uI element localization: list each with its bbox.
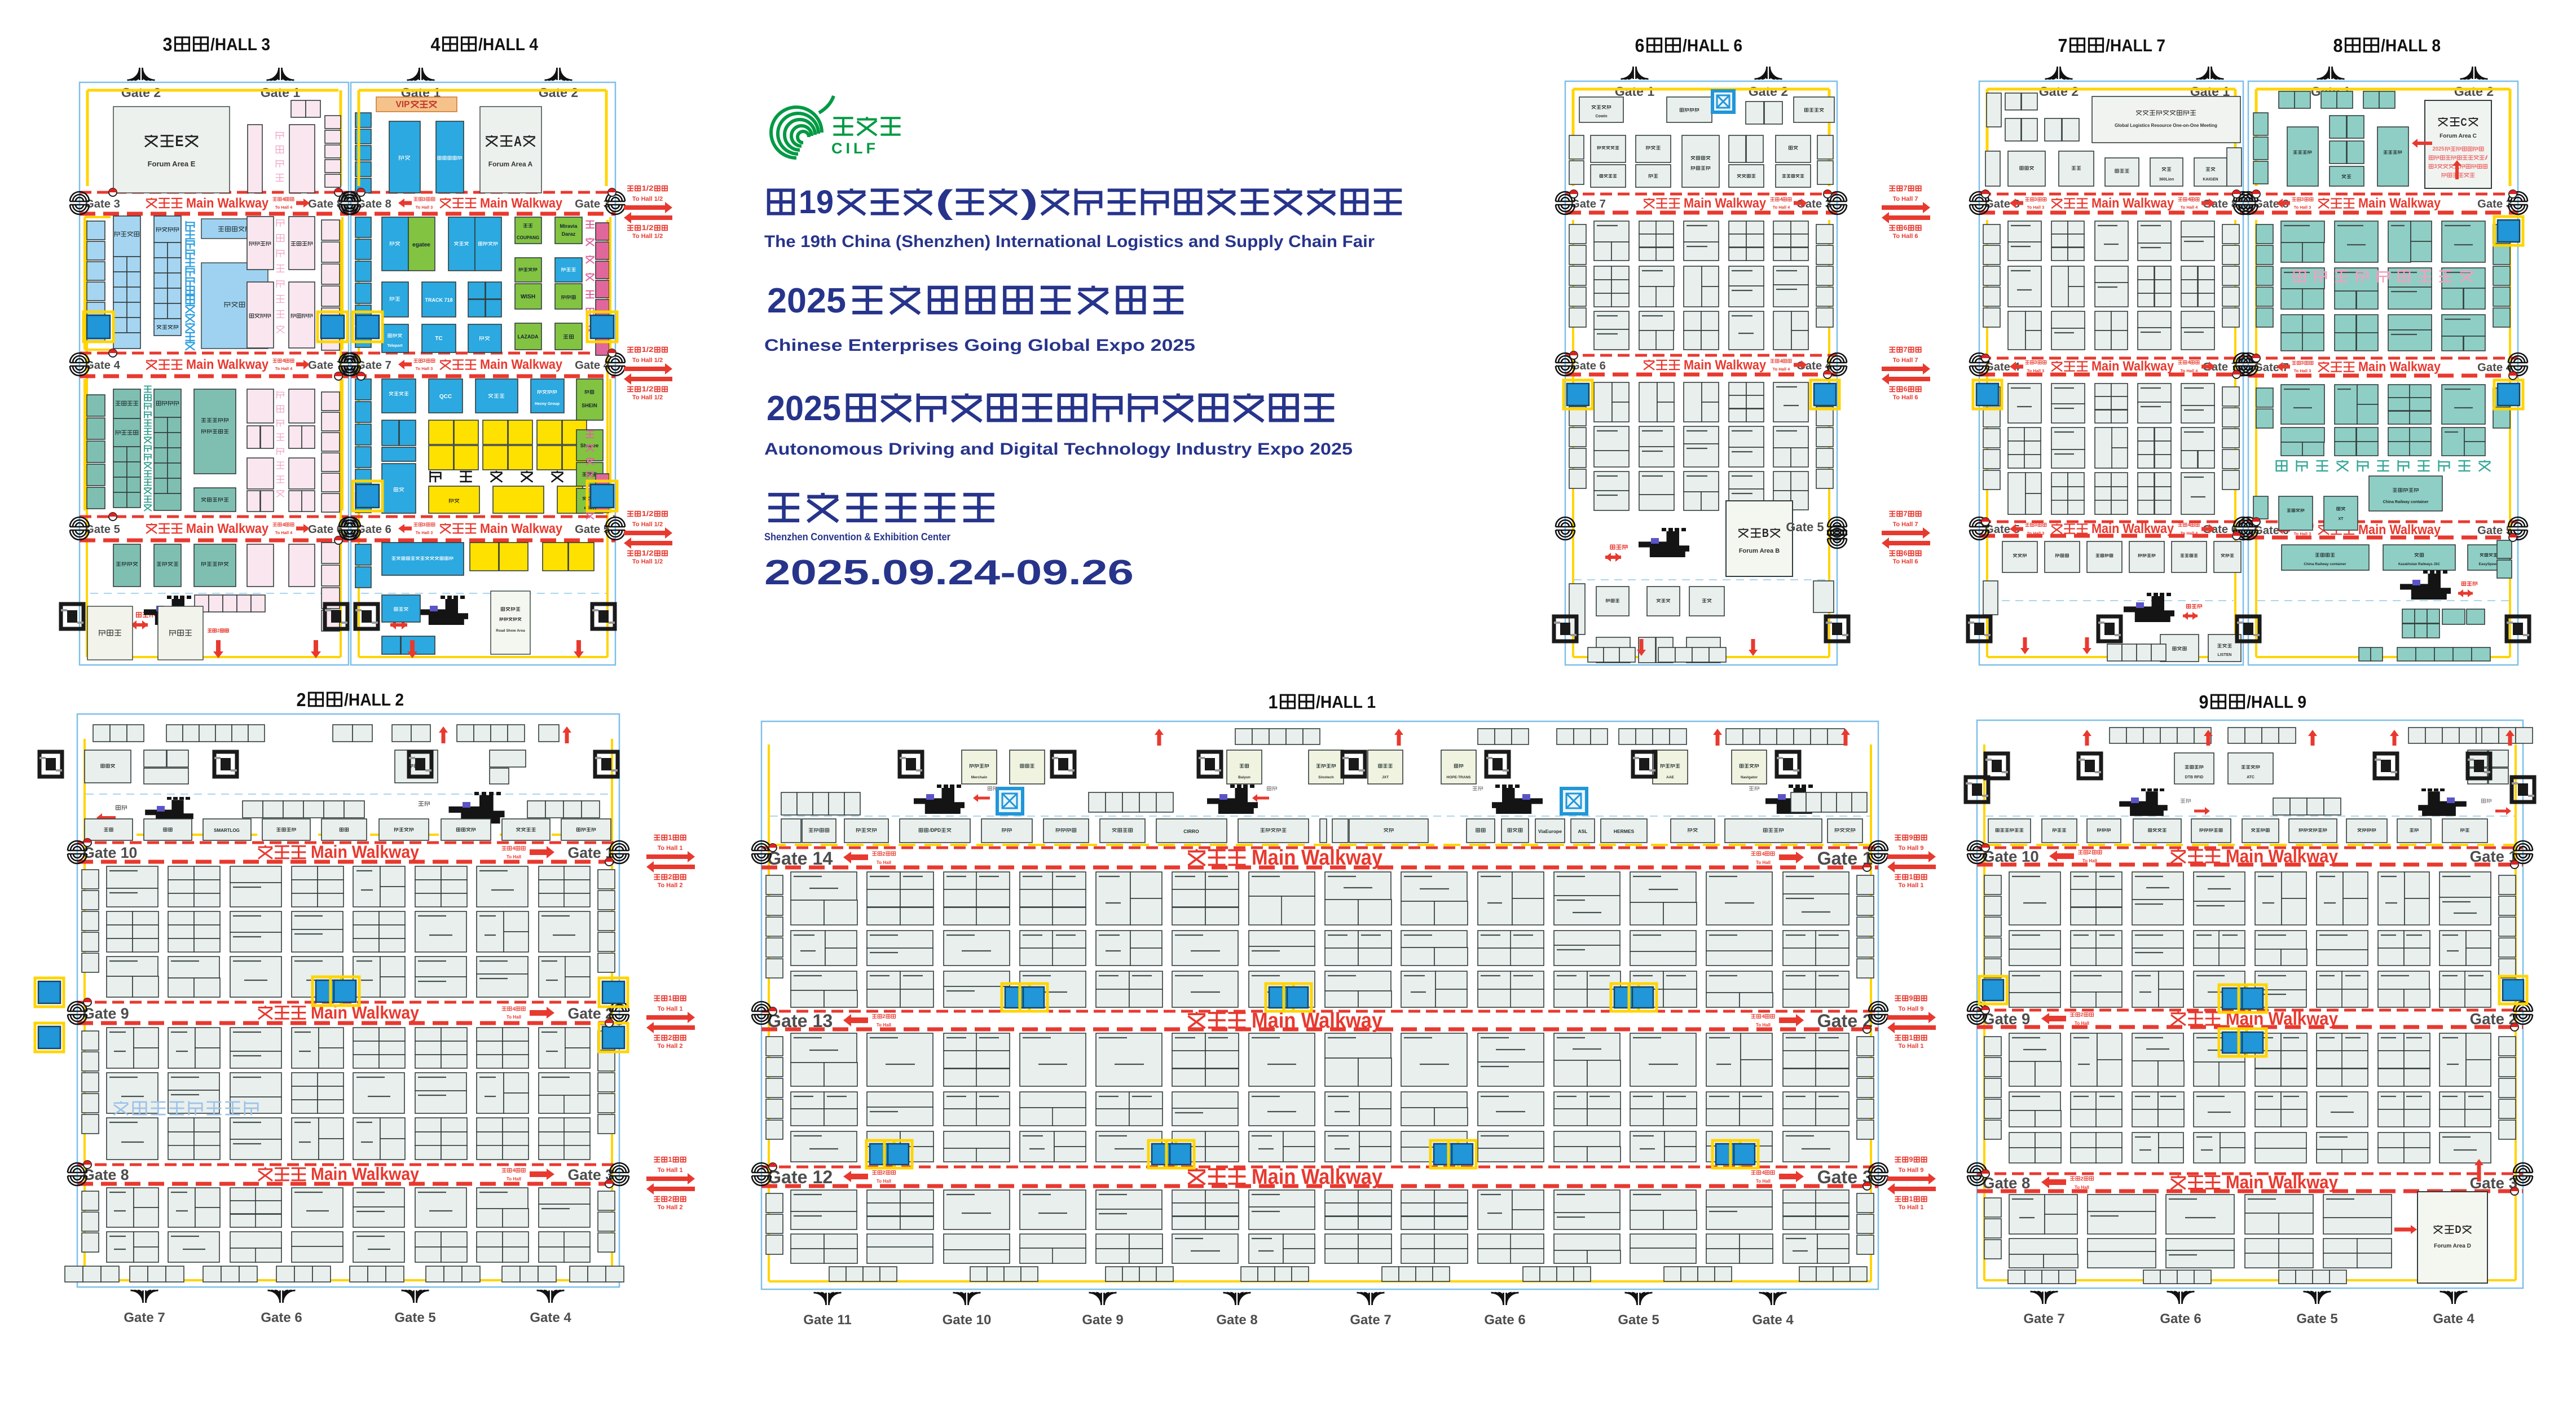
svg-text:7: 7 xyxy=(1904,184,1908,192)
svg-text:Gate 7: Gate 7 xyxy=(1571,198,1606,210)
svg-text:1: 1 xyxy=(668,834,672,841)
svg-text:A: A xyxy=(514,134,522,149)
svg-text:Main Walkway: Main Walkway xyxy=(480,196,563,211)
svg-text:To Hall 9: To Hall 9 xyxy=(1898,1006,1923,1012)
svg-text:To Hall 2: To Hall 2 xyxy=(657,1204,682,1211)
svg-text:Forum Area A: Forum Area A xyxy=(488,160,533,168)
svg-text:To Hall 1/2: To Hall 1/2 xyxy=(632,521,663,528)
svg-text:To Hall 3: To Hall 3 xyxy=(416,530,433,535)
svg-text:9: 9 xyxy=(2199,692,2209,713)
svg-text:Gate 8: Gate 8 xyxy=(1983,1174,2030,1192)
svg-text:China Railway container: China Railway container xyxy=(2383,500,2429,504)
svg-text:Gate 8: Gate 8 xyxy=(308,198,343,210)
svg-text:Merchain: Merchain xyxy=(971,775,988,779)
svg-text:/: / xyxy=(2485,155,2488,161)
svg-text:4: 4 xyxy=(513,845,516,851)
svg-text:To Hall 3: To Hall 3 xyxy=(2027,368,2045,373)
svg-text:To Hall 3: To Hall 3 xyxy=(2294,205,2311,210)
svg-text:Gate 4: Gate 4 xyxy=(2433,1311,2474,1327)
svg-text:Gate 9: Gate 9 xyxy=(1082,1312,1123,1328)
svg-text:Gate 4: Gate 4 xyxy=(530,1310,571,1325)
svg-text:2: 2 xyxy=(297,690,306,711)
svg-text:Gate 4: Gate 4 xyxy=(575,359,610,372)
svg-text:Gate 5: Gate 5 xyxy=(85,523,120,536)
svg-text:Forum Area C: Forum Area C xyxy=(2440,133,2477,139)
svg-text:Main Walkway: Main Walkway xyxy=(2226,846,2338,866)
svg-text:Forum Area D: Forum Area D xyxy=(2434,1243,2471,1249)
svg-text:Gate 5: Gate 5 xyxy=(2477,525,2512,537)
svg-text:ViaEurope: ViaEurope xyxy=(1538,829,1562,834)
svg-text:To Hall: To Hall xyxy=(507,1015,521,1020)
svg-text:1: 1 xyxy=(1269,692,1278,713)
svg-text:Cowin: Cowin xyxy=(1596,114,1608,118)
svg-text:Main Walkway: Main Walkway xyxy=(2358,359,2441,374)
svg-text:To Hall 6: To Hall 6 xyxy=(1892,394,1918,401)
svg-text:6: 6 xyxy=(1635,36,1645,56)
svg-text:Gate 5: Gate 5 xyxy=(1618,1312,1659,1328)
svg-text:TRACK 718: TRACK 718 xyxy=(425,297,452,303)
svg-text:Gate 7: Gate 7 xyxy=(308,359,343,372)
svg-text:6: 6 xyxy=(1904,224,1908,232)
svg-text:/HALL 8: /HALL 8 xyxy=(2381,36,2441,55)
svg-text:To Hall: To Hall xyxy=(877,860,891,865)
svg-text:4: 4 xyxy=(1762,1170,1765,1175)
svg-text:Main Walkway: Main Walkway xyxy=(1252,1165,1382,1189)
svg-text:Main Walkway: Main Walkway xyxy=(186,521,269,536)
svg-text:Gate 9: Gate 9 xyxy=(83,1005,129,1022)
svg-text:HERMES: HERMES xyxy=(1614,829,1635,834)
svg-text:To Hall: To Hall xyxy=(1756,1023,1771,1028)
svg-text:Gate 8: Gate 8 xyxy=(83,1166,129,1183)
svg-text:2025: 2025 xyxy=(767,281,846,320)
svg-text:3: 3 xyxy=(2301,360,2304,365)
svg-text:Sinotech: Sinotech xyxy=(1318,775,1333,779)
svg-text:Gate 2: Gate 2 xyxy=(121,85,161,100)
svg-text:Gate 3: Gate 3 xyxy=(575,198,610,210)
svg-text:JXT: JXT xyxy=(1382,775,1389,779)
svg-text:To Hall: To Hall xyxy=(2082,858,2097,863)
svg-text:To Hall 7: To Hall 7 xyxy=(1892,521,1918,528)
svg-text:Main Walkway: Main Walkway xyxy=(480,521,563,536)
svg-text:To Hall 1: To Hall 1 xyxy=(1898,1043,1923,1050)
svg-text:C: C xyxy=(2461,116,2467,129)
svg-text:WISH: WISH xyxy=(521,294,535,300)
svg-text:4: 4 xyxy=(2188,196,2191,202)
svg-text:4: 4 xyxy=(1780,358,1783,364)
svg-text:Gate 14: Gate 14 xyxy=(767,848,833,869)
svg-text:To Hall 3: To Hall 3 xyxy=(2294,368,2311,373)
svg-text:To Hall 3: To Hall 3 xyxy=(416,366,433,371)
svg-text:D: D xyxy=(2455,1223,2461,1235)
svg-text:Gate 3: Gate 3 xyxy=(2477,198,2512,210)
svg-text:To Hall 1: To Hall 1 xyxy=(657,845,682,852)
svg-text:2: 2 xyxy=(217,628,219,633)
svg-text:4: 4 xyxy=(1762,851,1765,857)
svg-text:VIP: VIP xyxy=(396,100,410,109)
svg-text:4: 4 xyxy=(2188,522,2191,527)
svg-text:Gate 6: Gate 6 xyxy=(2160,1311,2201,1327)
svg-text:To Hall 3: To Hall 3 xyxy=(2027,531,2045,536)
svg-text:Miravia: Miravia xyxy=(560,223,578,229)
svg-text:ASL: ASL xyxy=(1578,829,1588,834)
svg-text:Gate 4: Gate 4 xyxy=(85,359,121,372)
svg-text:Gate 8: Gate 8 xyxy=(1216,1312,1257,1328)
svg-text:2: 2 xyxy=(668,873,672,881)
svg-text:To Hall 4: To Hall 4 xyxy=(275,530,293,535)
svg-text:Gate 2: Gate 2 xyxy=(2039,84,2079,99)
svg-text:Gate 6: Gate 6 xyxy=(356,523,391,536)
svg-text:2: 2 xyxy=(883,1170,886,1175)
svg-text:/HALL 3: /HALL 3 xyxy=(210,34,270,54)
svg-text:/HALL 6: /HALL 6 xyxy=(1683,36,1742,55)
svg-text:ATC: ATC xyxy=(2247,775,2254,779)
svg-text:2: 2 xyxy=(2081,1176,2084,1182)
svg-text:Gate 6: Gate 6 xyxy=(1484,1312,1525,1328)
svg-text:Daraz: Daraz xyxy=(562,231,576,237)
svg-text:EasySpeed: EasySpeed xyxy=(2479,562,2499,566)
svg-text:To Hall 9: To Hall 9 xyxy=(1898,845,1923,852)
svg-text:To Hall 1/2: To Hall 1/2 xyxy=(632,558,663,565)
svg-text:9: 9 xyxy=(1909,994,1913,1002)
svg-text:Main Walkway: Main Walkway xyxy=(480,357,563,372)
svg-text:Kazakhstan Railways JSC: Kazakhstan Railways JSC xyxy=(2398,563,2441,566)
svg-text:8: 8 xyxy=(2333,36,2343,56)
svg-text:Main Walkway: Main Walkway xyxy=(2091,196,2174,211)
svg-text:Chinese Enterprises Going Glob: Chinese Enterprises Going Global Expo 20… xyxy=(764,336,1195,355)
svg-text:Main Walkway: Main Walkway xyxy=(186,196,269,211)
svg-text:1: 1 xyxy=(668,994,672,1002)
svg-text:2: 2 xyxy=(2089,849,2091,855)
svg-text:9: 9 xyxy=(1909,834,1913,841)
svg-text:(: ( xyxy=(936,184,954,221)
svg-text:To Hall 6: To Hall 6 xyxy=(1892,558,1918,565)
svg-text:Main Walkway: Main Walkway xyxy=(2358,522,2441,537)
svg-text:To Hall 4: To Hall 4 xyxy=(275,205,293,210)
svg-text:To Hall: To Hall xyxy=(2075,1021,2089,1026)
svg-text:XT: XT xyxy=(2339,517,2344,521)
svg-text:3: 3 xyxy=(2035,522,2037,527)
svg-text:4: 4 xyxy=(513,1167,516,1173)
svg-text:To Hall: To Hall xyxy=(877,1023,891,1028)
svg-text:Gate 4: Gate 4 xyxy=(2477,362,2513,374)
svg-text:The 19th China (Shenzhen) Inte: The 19th China (Shenzhen) International … xyxy=(764,232,1375,251)
svg-text:Global Logistics Resource One-: Global Logistics Resource One-on-One Mee… xyxy=(2115,123,2217,128)
svg-text:Gate 2: Gate 2 xyxy=(2454,84,2494,99)
svg-text:4: 4 xyxy=(513,1006,516,1012)
svg-text:4: 4 xyxy=(283,196,285,202)
svg-text:4: 4 xyxy=(1762,1013,1765,1019)
svg-text:Gate 12: Gate 12 xyxy=(767,1167,833,1187)
svg-text:Main Walkway: Main Walkway xyxy=(2358,196,2441,211)
svg-text:Gate 5: Gate 5 xyxy=(1786,520,1824,534)
svg-text:1/2: 1/2 xyxy=(642,510,654,518)
svg-text:1: 1 xyxy=(1909,1034,1913,1042)
svg-text:To Hall 4: To Hall 4 xyxy=(2181,531,2199,536)
svg-text:Main Walkway: Main Walkway xyxy=(1684,358,1767,373)
svg-text:/DPD: /DPD xyxy=(930,827,941,833)
svg-text:Main Walkway: Main Walkway xyxy=(2091,521,2174,536)
svg-text:4: 4 xyxy=(2188,359,2191,365)
svg-text:To Hall 1: To Hall 1 xyxy=(1898,882,1923,889)
svg-text:7: 7 xyxy=(2058,36,2068,56)
svg-text:4: 4 xyxy=(431,34,441,55)
svg-text:CILF: CILF xyxy=(831,140,879,157)
svg-text:To Hall 1/2: To Hall 1/2 xyxy=(632,357,663,364)
svg-text:3: 3 xyxy=(423,358,426,363)
svg-text:To Hall 1: To Hall 1 xyxy=(657,1006,682,1012)
svg-text:To Hall 4: To Hall 4 xyxy=(2181,368,2199,373)
svg-text:To Hall: To Hall xyxy=(1756,1179,1771,1184)
svg-text:Gate 5: Gate 5 xyxy=(394,1310,435,1325)
svg-text:CIRRO: CIRRO xyxy=(1183,829,1199,834)
svg-text:SHEIN: SHEIN xyxy=(582,403,597,408)
svg-text:4: 4 xyxy=(283,522,285,527)
svg-text:/HALL 9: /HALL 9 xyxy=(2247,692,2306,712)
svg-text:4: 4 xyxy=(1780,196,1783,202)
svg-text:2: 2 xyxy=(883,1013,886,1019)
svg-text:Baiyun: Baiyun xyxy=(1238,775,1250,779)
svg-text:Gate 1: Gate 1 xyxy=(261,85,301,100)
svg-text:1/2: 1/2 xyxy=(642,184,654,192)
svg-text:To Hall 1/2: To Hall 1/2 xyxy=(632,233,663,240)
svg-text:China Railway container: China Railway container xyxy=(2304,562,2346,566)
svg-text:To Hall: To Hall xyxy=(2075,1185,2089,1190)
svg-text:Gate 3: Gate 3 xyxy=(2470,1174,2517,1192)
svg-text:3: 3 xyxy=(2434,164,2437,170)
svg-text:3: 3 xyxy=(423,522,426,527)
svg-text:Shopee: Shopee xyxy=(580,443,599,448)
svg-text:3: 3 xyxy=(423,196,426,202)
svg-text:Forum Area B: Forum Area B xyxy=(1739,548,1780,554)
svg-text:7: 7 xyxy=(1904,510,1908,518)
svg-text:Gate 2: Gate 2 xyxy=(1749,84,1788,99)
svg-text:To Hall: To Hall xyxy=(877,1179,891,1184)
svg-text:To Hall 1/2: To Hall 1/2 xyxy=(632,196,663,202)
svg-text:2: 2 xyxy=(2081,1012,2084,1017)
svg-text:To Hall 4: To Hall 4 xyxy=(2181,205,2199,210)
svg-text:2025.09.24-09.26: 2025.09.24-09.26 xyxy=(764,553,1134,592)
svg-text:9: 9 xyxy=(1909,1156,1913,1164)
svg-text:Gate 2: Gate 2 xyxy=(539,85,578,100)
svg-text:AAE: AAE xyxy=(1666,775,1674,779)
svg-text:To Hall 1: To Hall 1 xyxy=(657,1167,682,1174)
svg-text:Gate 4: Gate 4 xyxy=(1752,1312,1794,1328)
svg-text:To Hall 3: To Hall 3 xyxy=(2027,205,2045,210)
svg-text:1: 1 xyxy=(668,1156,672,1164)
svg-text:Gate 5: Gate 5 xyxy=(2296,1311,2337,1327)
svg-text:Main Walkway: Main Walkway xyxy=(2091,359,2174,374)
svg-text:Gate 3: Gate 3 xyxy=(85,198,120,210)
svg-text:E: E xyxy=(175,133,184,149)
svg-text:Gate 13: Gate 13 xyxy=(767,1011,833,1031)
svg-text:LISTEN: LISTEN xyxy=(2218,653,2232,657)
svg-text:Gate 7: Gate 7 xyxy=(356,359,391,372)
svg-text:Gate 7: Gate 7 xyxy=(124,1310,165,1325)
svg-text:Hecny Group: Hecny Group xyxy=(535,402,560,406)
svg-text:To Hall 7: To Hall 7 xyxy=(1892,196,1918,202)
svg-text:Main Walkway: Main Walkway xyxy=(1684,196,1767,211)
svg-text:Gate 11: Gate 11 xyxy=(803,1312,851,1328)
svg-text:QCC: QCC xyxy=(439,394,452,400)
svg-text:/HALL 7: /HALL 7 xyxy=(2106,36,2165,55)
svg-text:6: 6 xyxy=(1904,385,1908,393)
svg-text:To Hall 6: To Hall 6 xyxy=(1892,233,1918,240)
svg-text:3: 3 xyxy=(2035,359,2037,365)
svg-text:Gate 6: Gate 6 xyxy=(1571,360,1606,372)
svg-text:1/2: 1/2 xyxy=(642,224,654,232)
svg-text:Main Walkway: Main Walkway xyxy=(2226,1172,2338,1192)
svg-text:19: 19 xyxy=(799,184,834,221)
svg-text:LAZADA: LAZADA xyxy=(518,334,539,340)
svg-text:egatee: egatee xyxy=(412,242,430,248)
svg-text:To Hall 4: To Hall 4 xyxy=(1773,205,1791,210)
svg-text:To Hall 4: To Hall 4 xyxy=(1773,367,1791,372)
svg-text:1: 1 xyxy=(1909,873,1913,881)
svg-text:KAIGEN: KAIGEN xyxy=(2203,178,2218,182)
svg-text:Gate 6: Gate 6 xyxy=(308,523,343,536)
svg-text:To Hall 2: To Hall 2 xyxy=(657,882,682,889)
svg-text:Road Show Area: Road Show Area xyxy=(496,629,525,633)
svg-text:DTB RFID: DTB RFID xyxy=(2185,775,2204,779)
svg-text:Gate 5: Gate 5 xyxy=(575,523,610,536)
svg-text:TC: TC xyxy=(435,336,442,342)
svg-text:Gate 10: Gate 10 xyxy=(1983,848,2039,865)
svg-text:To Hall: To Hall xyxy=(507,854,521,860)
svg-text:Gate 2: Gate 2 xyxy=(2470,1010,2517,1028)
svg-text:To Hall: To Hall xyxy=(507,1176,521,1182)
svg-text:Main Walkway: Main Walkway xyxy=(311,842,420,862)
svg-text:To Hall 9: To Hall 9 xyxy=(1898,1167,1923,1174)
svg-text:To Hall 1: To Hall 1 xyxy=(1898,1204,1923,1211)
svg-text:To Hall 2: To Hall 2 xyxy=(657,1043,682,1050)
svg-text:Main Walkway: Main Walkway xyxy=(1252,846,1382,870)
svg-text:B: B xyxy=(1762,527,1769,540)
svg-text:Gate 6: Gate 6 xyxy=(261,1310,302,1325)
svg-text:2025: 2025 xyxy=(767,389,841,428)
svg-text:/HALL 2: /HALL 2 xyxy=(344,690,404,710)
svg-text:Autonomous Driving and Digital: Autonomous Driving and Digital Technolog… xyxy=(764,440,1353,459)
svg-text:To Hall 7: To Hall 7 xyxy=(1892,357,1918,364)
svg-text:2: 2 xyxy=(883,851,886,857)
svg-text:HOPE-TRANS: HOPE-TRANS xyxy=(1447,775,1472,779)
svg-text:1: 1 xyxy=(1909,1195,1913,1203)
svg-text:/HALL 4: /HALL 4 xyxy=(478,34,539,54)
svg-text:360Lion: 360Lion xyxy=(2159,178,2174,182)
svg-text:1/2: 1/2 xyxy=(642,346,654,354)
svg-text:): ) xyxy=(1021,184,1038,221)
svg-text:4: 4 xyxy=(283,358,285,363)
svg-text:To Hall 1/2: To Hall 1/2 xyxy=(632,394,663,401)
svg-text:COUPANG: COUPANG xyxy=(517,235,539,240)
svg-text:To Hall 3: To Hall 3 xyxy=(416,205,433,210)
svg-text:3: 3 xyxy=(163,34,173,55)
svg-text:7: 7 xyxy=(1904,346,1908,354)
svg-text:1/2: 1/2 xyxy=(642,549,654,557)
svg-text:Gate 7: Gate 7 xyxy=(1350,1312,1391,1328)
svg-text:To Hall 3: To Hall 3 xyxy=(2294,531,2311,536)
svg-text:Gate 10: Gate 10 xyxy=(83,844,137,861)
svg-text:To Hall: To Hall xyxy=(1756,860,1771,865)
svg-text:Gate 1: Gate 1 xyxy=(1615,84,1655,99)
svg-text:Main Walkway: Main Walkway xyxy=(186,357,269,372)
svg-text:Navigator: Navigator xyxy=(1741,775,1758,779)
svg-text:Gate 9: Gate 9 xyxy=(1983,1010,2030,1028)
svg-text:Gate 8: Gate 8 xyxy=(356,198,391,210)
svg-text:3: 3 xyxy=(2035,196,2037,202)
svg-text:3: 3 xyxy=(2301,196,2304,202)
svg-text:6: 6 xyxy=(1904,549,1908,557)
svg-text:Gate 10: Gate 10 xyxy=(943,1312,992,1328)
svg-text:Gate 7: Gate 7 xyxy=(2023,1311,2064,1327)
svg-text:/HALL 1: /HALL 1 xyxy=(1316,692,1376,712)
svg-text:Main Walkway: Main Walkway xyxy=(311,1164,420,1184)
svg-text:1/2: 1/2 xyxy=(642,385,654,393)
svg-text:Forum Area E: Forum Area E xyxy=(148,160,196,168)
svg-text:Gate 1: Gate 1 xyxy=(2470,848,2517,865)
svg-text:2: 2 xyxy=(668,1195,672,1203)
svg-text:2025: 2025 xyxy=(2433,146,2445,152)
svg-text:To Hall 4: To Hall 4 xyxy=(275,366,293,371)
svg-text:2: 2 xyxy=(668,1034,672,1042)
svg-text:Shenzhen Convention & Exhibiti: Shenzhen Convention & Exhibition Center xyxy=(764,531,950,543)
svg-text:Teleport: Teleport xyxy=(387,344,403,348)
svg-text:SMARTLOG: SMARTLOG xyxy=(214,828,240,833)
